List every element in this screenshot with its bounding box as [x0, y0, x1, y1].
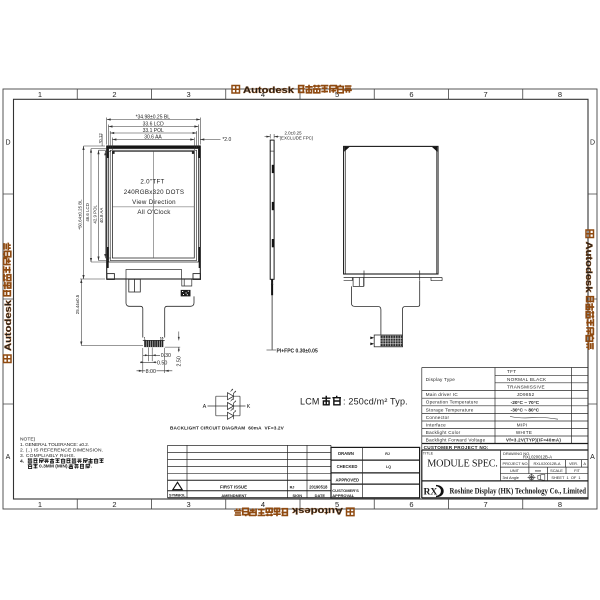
svg-text:RX: RX: [424, 488, 438, 498]
svg-text:A: A: [6, 454, 11, 461]
svg-text:Backlight Color: Backlight Color: [426, 430, 461, 435]
svg-text:: 250cd/m² Typ.: : 250cd/m² Typ.: [343, 397, 408, 407]
svg-text:RXL020012B-A: RXL020012B-A: [523, 455, 552, 460]
svg-text:All O'Clock: All O'Clock: [137, 209, 171, 216]
svg-text:42.9 POL: 42.9 POL: [93, 204, 98, 223]
svg-text:30.6 AA: 30.6 AA: [144, 135, 162, 141]
svg-text:Backlight Forward Voltage: Backlight Forward Voltage: [426, 438, 486, 443]
svg-text:Display Type: Display Type: [426, 377, 455, 382]
svg-text:Storage Temperature: Storage Temperature: [426, 407, 474, 412]
svg-text:JD9852: JD9852: [517, 392, 535, 397]
svg-text:0.3MM (MIN),: 0.3MM (MIN),: [39, 464, 70, 470]
svg-text:1. GENERAL TOLERANCE: ±0.2.: 1. GENERAL TOLERANCE: ±0.2.: [20, 442, 89, 448]
svg-text:LCM: LCM: [300, 397, 320, 407]
svg-text:BACKLIGHT CIRCUIT DIAGRAM 60m: BACKLIGHT CIRCUIT DIAGRAM 60mA VF=3.2V: [170, 425, 285, 430]
svg-text:VER.: VER.: [569, 461, 578, 466]
svg-text:3rd Angle: 3rd Angle: [503, 475, 519, 480]
svg-text:2: 2: [112, 500, 116, 509]
svg-text:2.0"TFT: 2.0"TFT: [140, 179, 164, 186]
svg-text:Autodesk: Autodesk: [243, 85, 295, 96]
svg-text:A: A: [203, 404, 207, 410]
svg-text:Operation Temperature: Operation Temperature: [426, 400, 479, 405]
svg-text:NOTE): NOTE): [20, 437, 36, 443]
svg-text:8: 8: [558, 90, 562, 99]
svg-text:3. COMPLIABLY RoHS.: 3. COMPLIABLY RoHS.: [20, 453, 75, 459]
svg-text:NORMAL BLACK: NORMAL BLACK: [507, 377, 547, 382]
svg-text:SHEET 1 OF 1: SHEET 1 OF 1: [551, 475, 580, 480]
svg-text:2.50: 2.50: [177, 356, 183, 366]
svg-text:D: D: [5, 139, 10, 146]
svg-text:UNIT: UNIT: [510, 468, 520, 473]
svg-text:*0.12: *0.12: [98, 133, 103, 144]
svg-text:K: K: [247, 404, 251, 410]
svg-text:TITLE: TITLE: [423, 451, 434, 455]
svg-text:-20°C ~ 70°C: -20°C ~ 70°C: [511, 400, 540, 406]
svg-text:1: 1: [38, 500, 42, 509]
svg-text:Main driver IC: Main driver IC: [426, 392, 459, 397]
svg-text:*50.64±0.25 BL: *50.64±0.25 BL: [78, 199, 83, 230]
svg-text:APPROVAL: APPROVAL: [332, 493, 354, 498]
svg-text:Autodesk: Autodesk: [583, 242, 594, 294]
svg-text:33.6 LCD: 33.6 LCD: [143, 122, 165, 128]
svg-text:Roshine Display (HK) Technolog: Roshine Display (HK) Technology Co., Lim…: [450, 487, 587, 496]
svg-text:APPROVED: APPROVED: [336, 477, 360, 482]
svg-text:6: 6: [409, 90, 413, 99]
svg-text:*34.98±0.25 BL: *34.98±0.25 BL: [136, 114, 171, 120]
svg-text:DRAWN: DRAWN: [338, 451, 354, 456]
svg-text:SIGN: SIGN: [293, 493, 303, 498]
svg-text:1: 1: [144, 336, 146, 340]
svg-text:PROJECT NO.: PROJECT NO.: [503, 461, 529, 466]
svg-text:46.6 LCD: 46.6 LCD: [85, 203, 90, 222]
svg-text:TRANSMISSIVE: TRANSMISSIVE: [507, 385, 545, 390]
svg-text:2. (..) IS REFERENCE DIMENSION: 2. (..) IS REFERENCE DIMENSION.: [20, 448, 103, 454]
svg-text:View Direction: View Direction: [132, 199, 176, 206]
svg-text:WHITE: WHITE: [516, 430, 532, 435]
svg-text:A: A: [590, 454, 595, 461]
svg-text:7: 7: [484, 90, 488, 99]
svg-text:33.1 POL: 33.1 POL: [143, 128, 164, 134]
svg-text:4: 4: [261, 500, 265, 509]
svg-text:RJ: RJ: [385, 452, 390, 456]
svg-text:A: A: [583, 461, 586, 466]
svg-text:mm: mm: [535, 468, 541, 473]
svg-text:Autodesk: Autodesk: [3, 299, 14, 351]
svg-text:16: 16: [160, 336, 164, 340]
svg-text:Vf=3.2V(TYP)(IF=40mA): Vf=3.2V(TYP)(IF=40mA): [506, 438, 561, 443]
svg-text:20190518: 20190518: [309, 485, 328, 490]
svg-text:CHECKED: CHECKED: [337, 464, 358, 469]
svg-text:0.50: 0.50: [157, 360, 167, 366]
svg-text:AMENDMENT: AMENDMENT: [221, 493, 247, 498]
svg-text:MIPI: MIPI: [517, 423, 528, 428]
svg-text:8.00: 8.00: [146, 369, 156, 375]
svg-text:2: 2: [112, 90, 116, 99]
svg-text:RXL020012B-A: RXL020012B-A: [533, 461, 560, 466]
svg-text:6: 6: [409, 500, 413, 509]
svg-text:SYMBOL: SYMBOL: [169, 493, 186, 498]
svg-text:D: D: [590, 139, 595, 146]
svg-text:MODULE SPEC.: MODULE SPEC.: [427, 459, 498, 470]
svg-text:PI+FPC 0.30±0.05: PI+FPC 0.30±0.05: [277, 348, 318, 354]
svg-text:4.: 4.: [20, 459, 25, 465]
svg-text:1: 1: [38, 90, 42, 99]
svg-text:CUSTOMER PROJECT NO:: CUSTOMER PROJECT NO:: [424, 445, 489, 450]
svg-text:Autodesk: Autodesk: [291, 505, 343, 516]
svg-text:(EXCLUDE FPC): (EXCLUDE FPC): [280, 136, 314, 141]
svg-text:25.44±0.5: 25.44±0.5: [75, 294, 80, 314]
svg-text:LQ: LQ: [386, 465, 391, 469]
svg-text:Connector: Connector: [426, 415, 450, 420]
svg-text:*2.0: *2.0: [222, 137, 231, 143]
svg-text:FIT: FIT: [574, 468, 580, 473]
svg-text:40.8 AA: 40.8 AA: [99, 208, 104, 223]
svg-text:-30°C ~ 80°C: -30°C ~ 80°C: [511, 408, 540, 414]
svg-text:RJ: RJ: [290, 486, 295, 490]
svg-text:0.30: 0.30: [161, 353, 171, 359]
svg-text:8: 8: [558, 500, 562, 509]
svg-text:7: 7: [484, 500, 488, 509]
svg-text:SCALE: SCALE: [550, 468, 563, 473]
svg-text:3: 3: [187, 500, 191, 509]
svg-text:3: 3: [187, 90, 191, 99]
svg-text:FIRST ISSUE: FIRST ISSUE: [220, 485, 247, 490]
svg-text:TFT: TFT: [507, 369, 516, 374]
svg-text:240RGBx320 DOTS: 240RGBx320 DOTS: [124, 189, 185, 196]
svg-text:DATE: DATE: [315, 493, 326, 498]
svg-text:Interface: Interface: [426, 423, 446, 428]
